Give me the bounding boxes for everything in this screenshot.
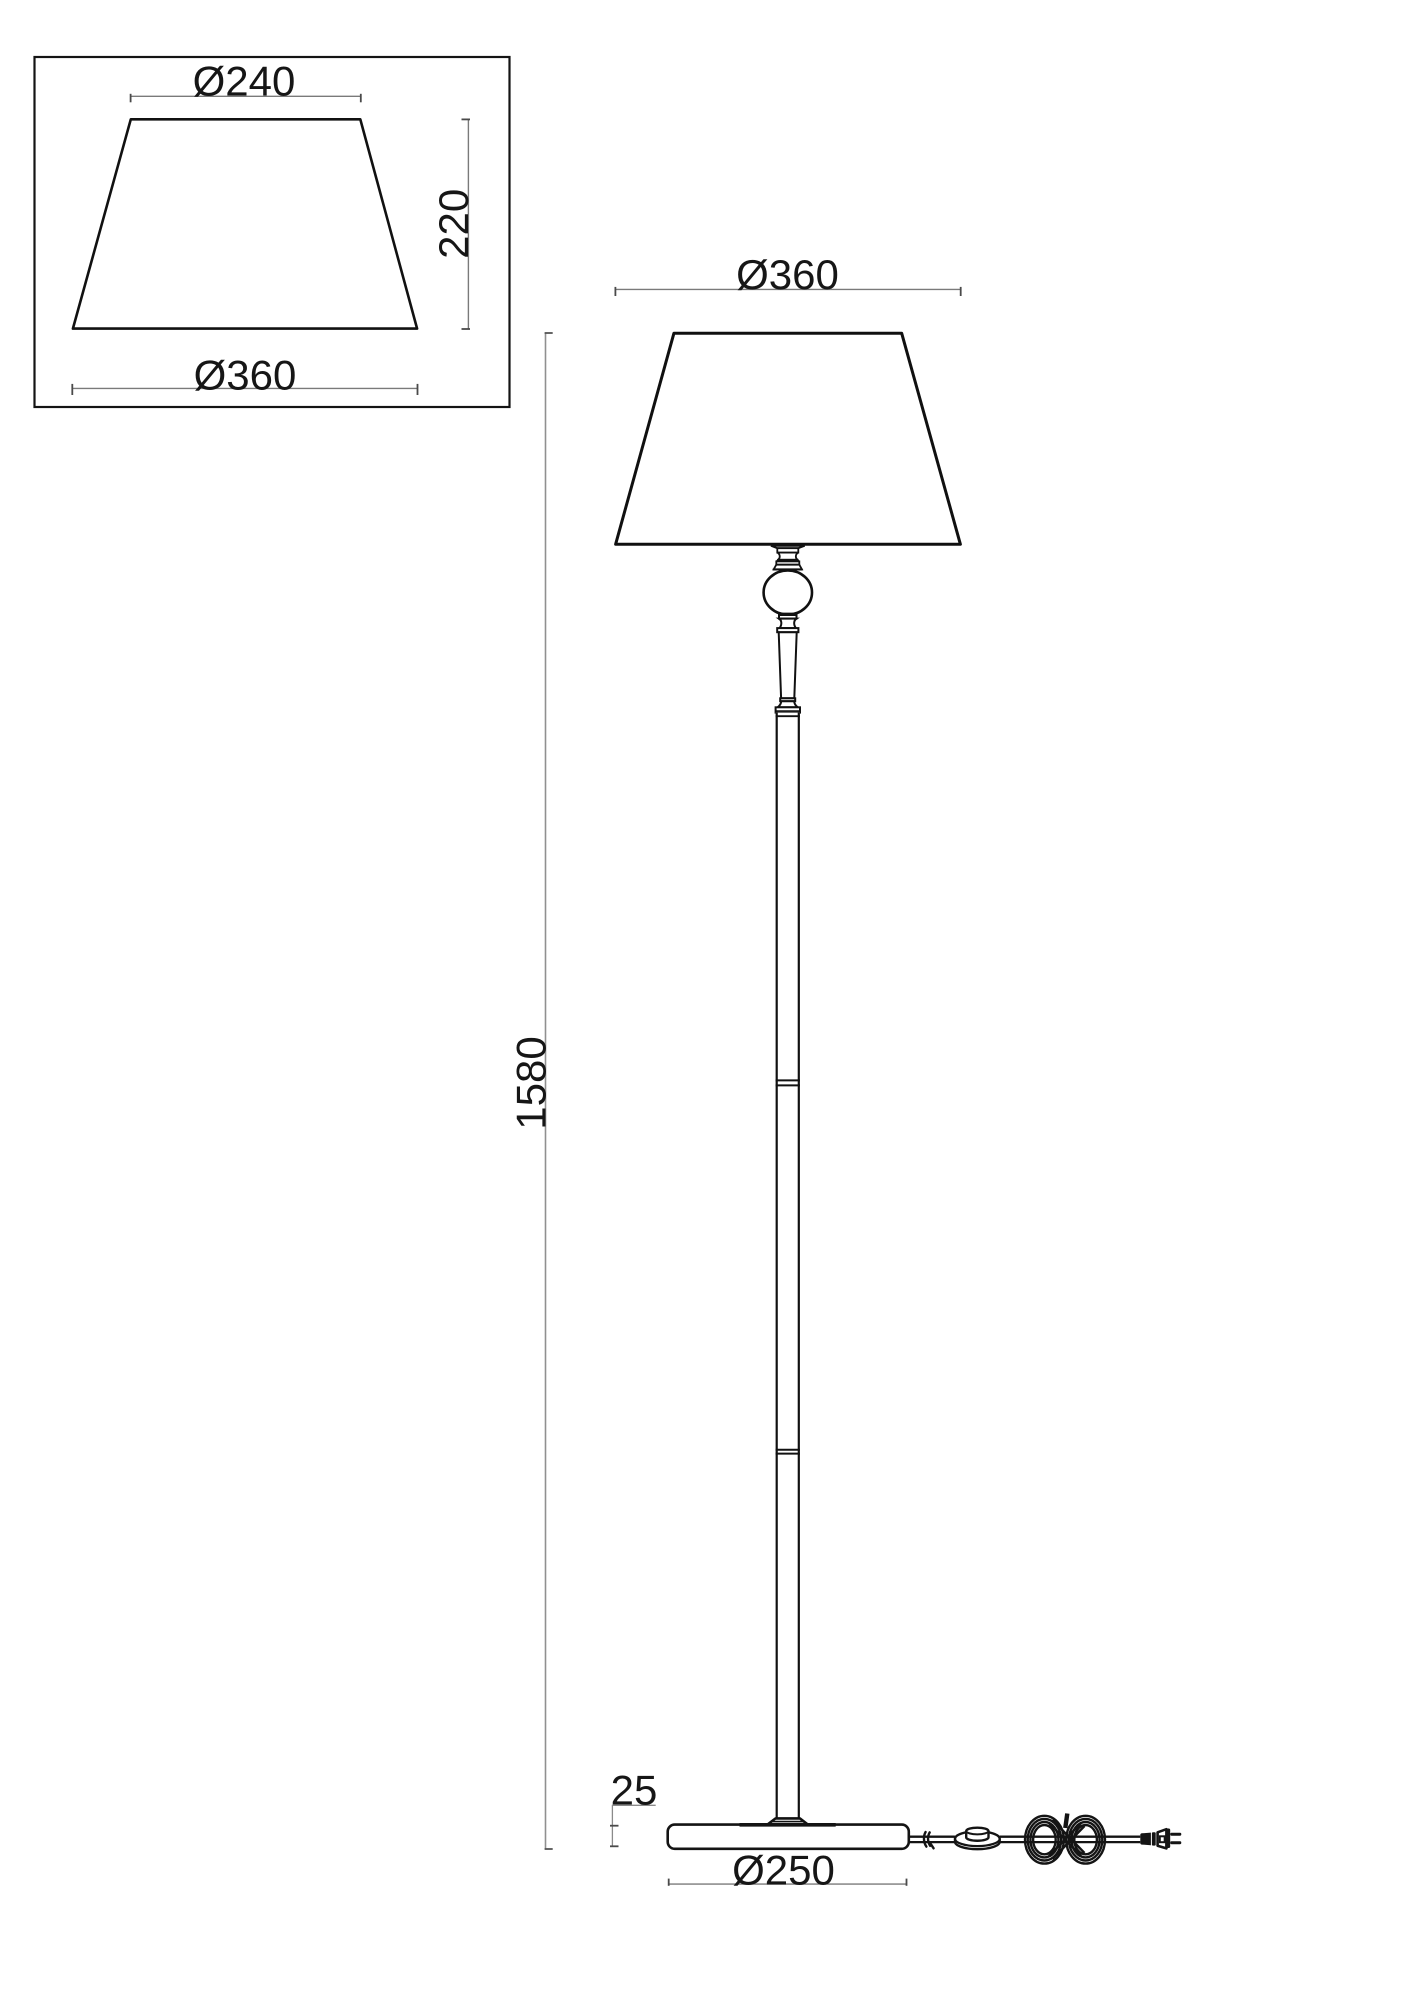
svg-text:1580: 1580: [507, 1036, 554, 1129]
svg-text:Ø250: Ø250: [732, 1846, 835, 1893]
svg-text:25: 25: [611, 1767, 658, 1814]
svg-text:Ø240: Ø240: [193, 58, 296, 105]
svg-text:220: 220: [430, 189, 477, 259]
svg-text:Ø360: Ø360: [194, 351, 297, 398]
svg-text:Ø360: Ø360: [736, 251, 839, 298]
